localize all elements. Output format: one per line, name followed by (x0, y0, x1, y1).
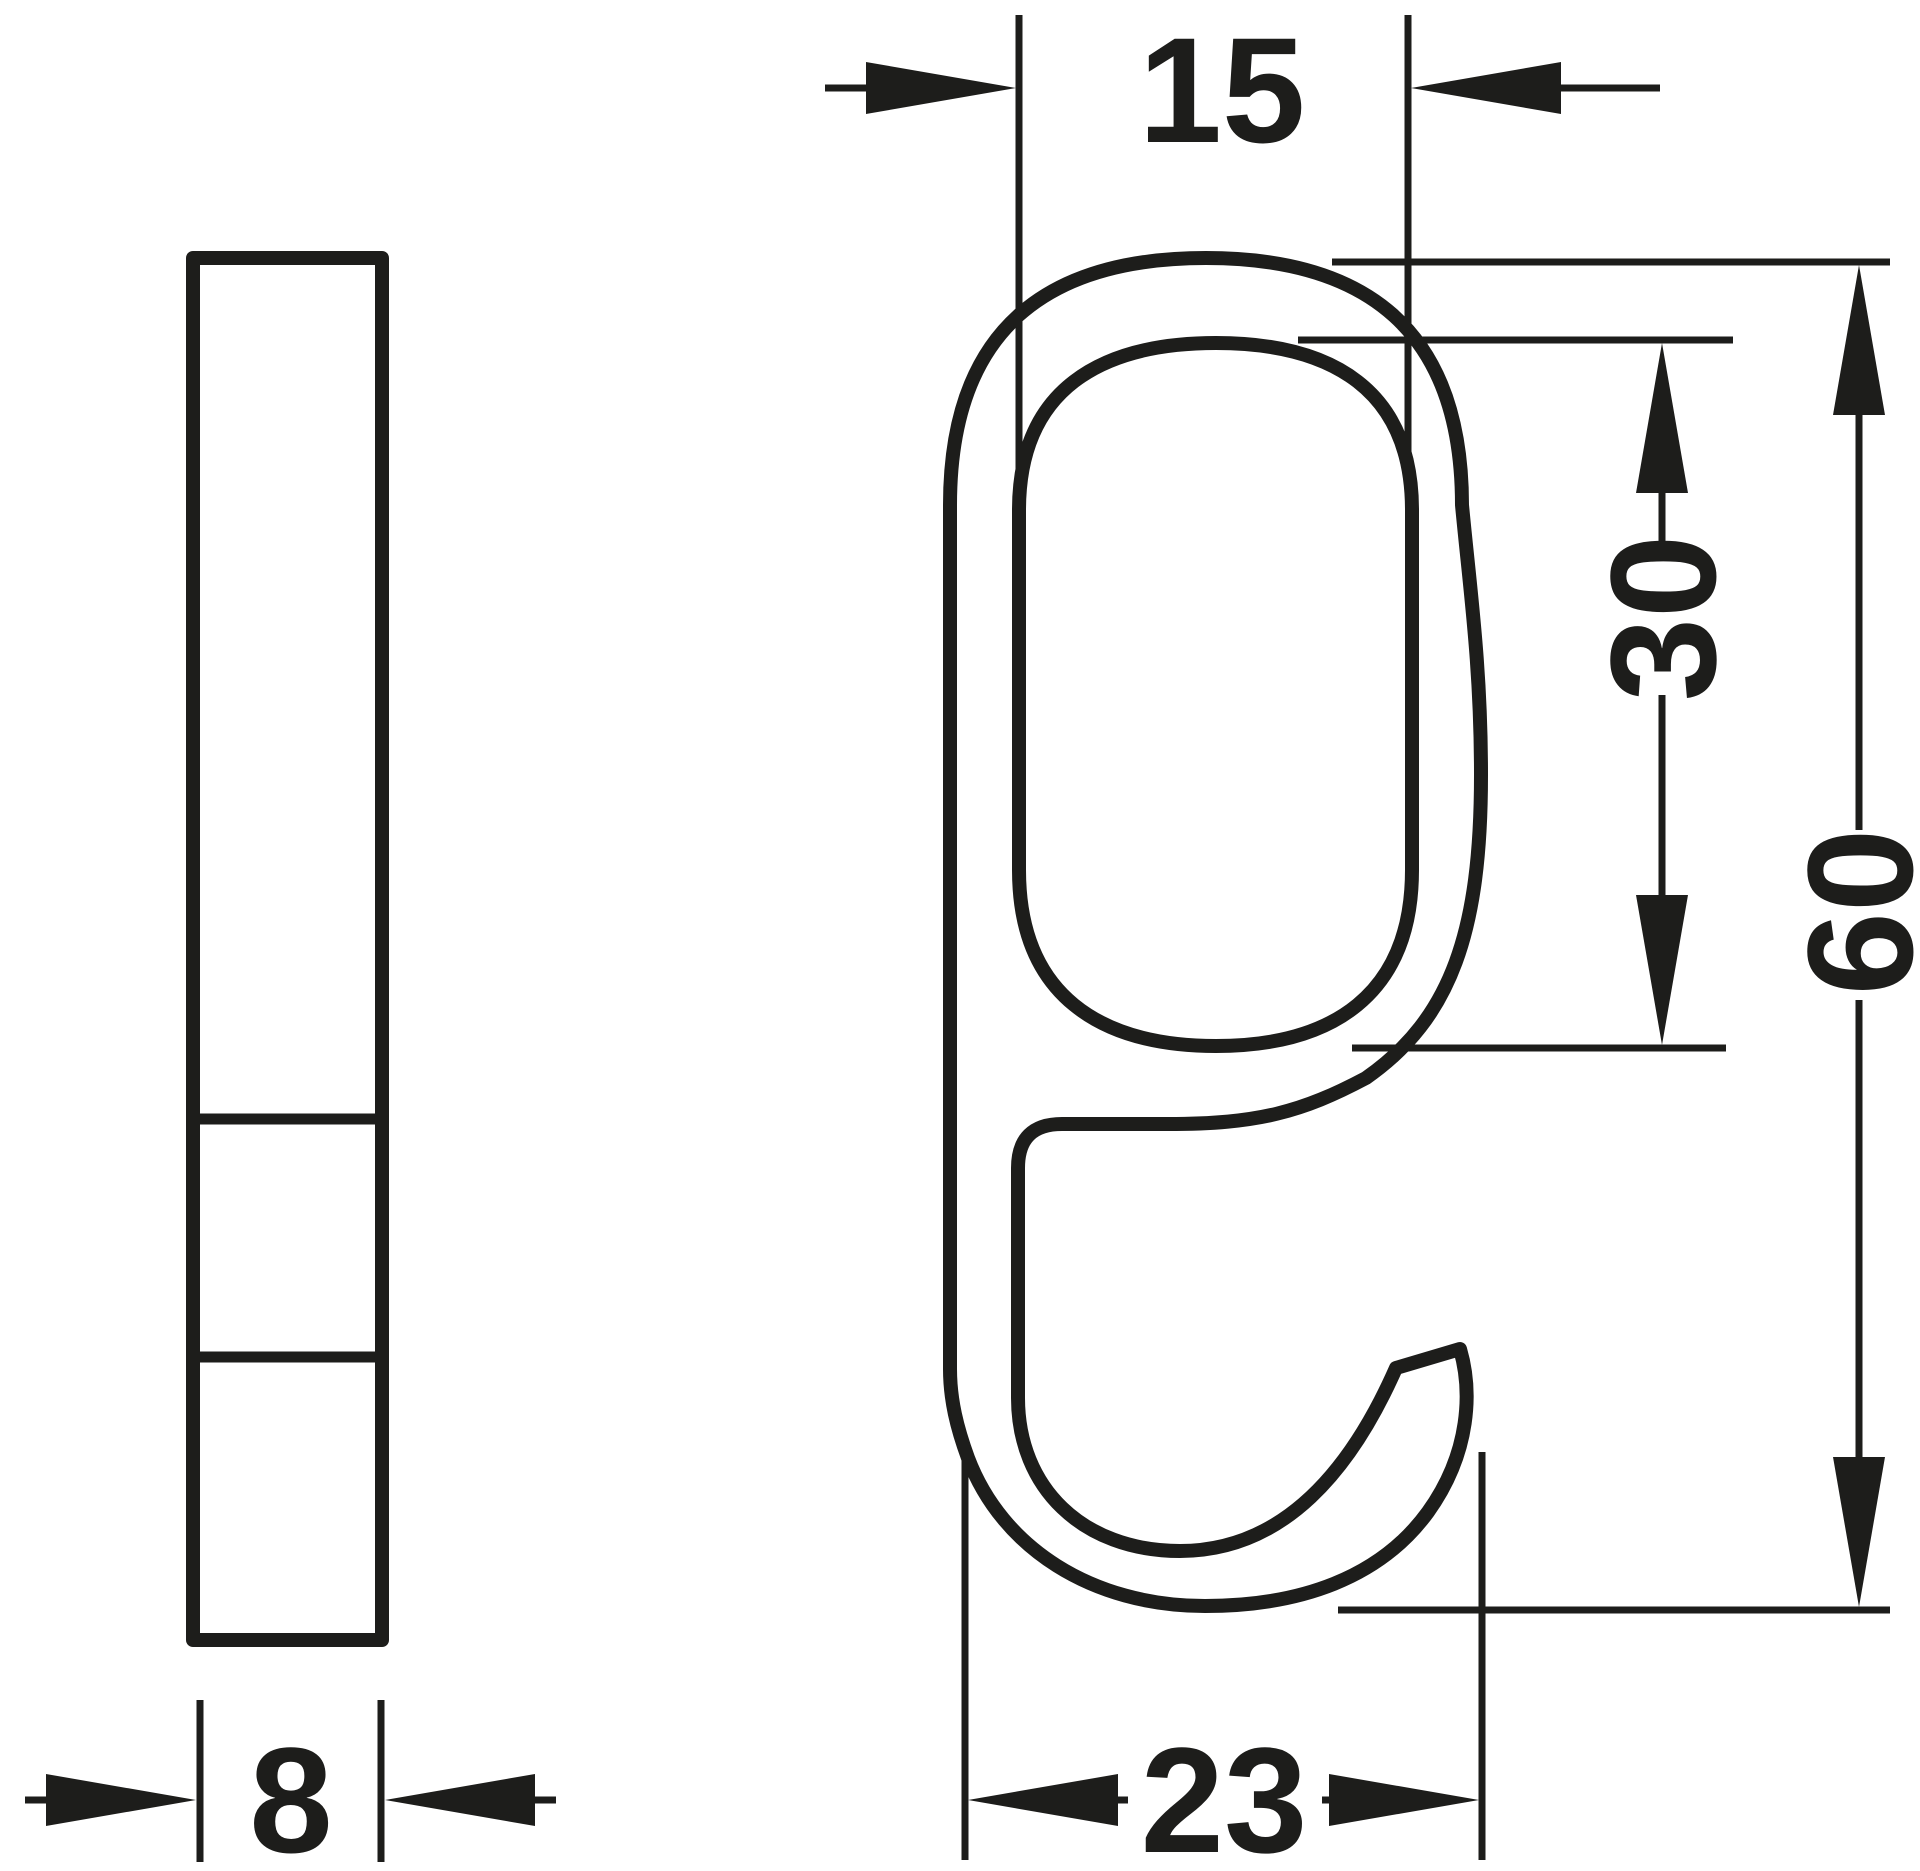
dimension-hook-depth: 23 (965, 1452, 1482, 1871)
arrow-left-icon (1411, 62, 1561, 114)
side-view (193, 258, 382, 1640)
dim-label-30: 30 (1579, 535, 1747, 702)
arrow-left-icon (968, 1774, 1118, 1826)
technical-drawing: 15 30 60 (0, 0, 1920, 1871)
dim-label-23: 23 (1141, 1716, 1308, 1871)
side-view-outline (193, 258, 382, 1640)
drawing-canvas: 15 30 60 (0, 0, 1920, 1871)
arrow-right-icon (46, 1774, 196, 1826)
front-view (950, 258, 1481, 1606)
dimension-slot-width: 15 (825, 6, 1660, 470)
arrow-right-icon (866, 62, 1016, 114)
arrow-up-icon (1833, 265, 1885, 415)
arrow-down-icon (1636, 895, 1688, 1045)
dimension-slot-height: 30 (1298, 340, 1747, 1048)
dim-label-8: 8 (249, 1716, 332, 1871)
arrow-up-icon (1636, 343, 1688, 493)
arrow-down-icon (1833, 1457, 1885, 1607)
dim-label-60: 60 (1776, 829, 1920, 996)
arrow-left-icon (385, 1774, 535, 1826)
dim-label-15: 15 (1139, 6, 1306, 174)
arrow-right-icon (1329, 1774, 1479, 1826)
dimension-thickness: 8 (25, 1700, 556, 1871)
front-view-oval-slot (1019, 343, 1412, 1046)
dimension-total-height: 60 (1332, 262, 1920, 1610)
